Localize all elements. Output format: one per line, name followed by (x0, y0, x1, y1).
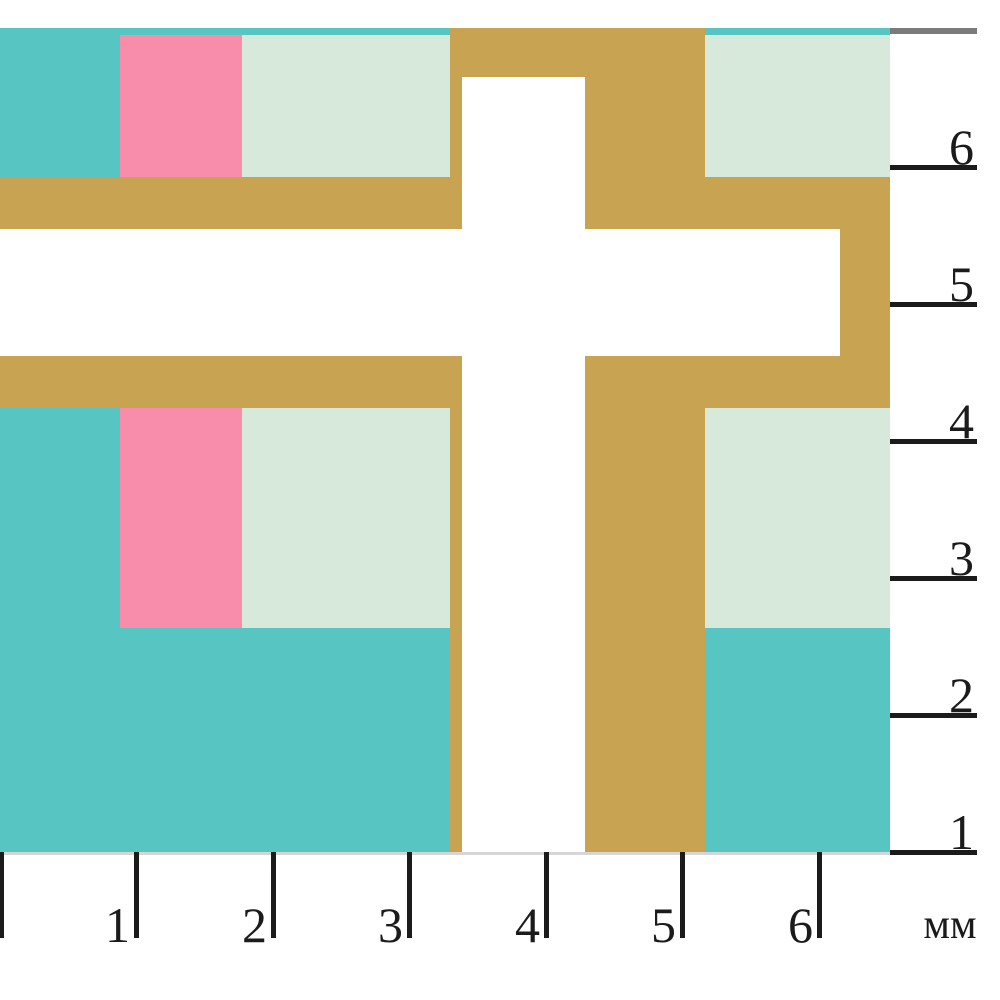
mint-block-lower (242, 408, 450, 628)
gold-band-lower-left (0, 356, 462, 408)
bottom-ruler-tick-1 (134, 852, 139, 938)
measurement-diagram: 654321 123456 мм (0, 0, 1000, 1000)
gold-band-upper-right (585, 177, 890, 229)
unit-label: мм (905, 904, 995, 946)
gold-arm-end-wall (840, 229, 890, 356)
gold-top-band (450, 28, 705, 77)
bottom-ruler-tick-5 (680, 852, 685, 938)
right-ruler-label-4: 4 (890, 396, 974, 446)
bottom-ruler-label-3: 3 (343, 900, 403, 950)
mint-block-upper-right (705, 35, 890, 177)
bottom-ruler-label-1: 1 (70, 900, 130, 950)
gold-left-wall-upper (450, 77, 462, 177)
right-ruler-label-2: 2 (890, 670, 974, 720)
gold-band-upper-left (0, 177, 462, 229)
bottom-ruler-tick-edge (0, 852, 4, 938)
gold-left-wall-lower (450, 408, 462, 852)
right-ruler-label-1: 1 (890, 807, 974, 857)
right-ruler-label-3: 3 (890, 533, 974, 583)
bottom-ruler-label-6: 6 (753, 900, 813, 950)
pink-block-lower (120, 408, 242, 628)
bottom-ruler-tick-4 (544, 852, 549, 938)
mint-block-upper (242, 35, 450, 177)
teal-top-strip-left (0, 28, 450, 35)
bottom-ruler-label-2: 2 (207, 900, 267, 950)
teal-top-strip-right (705, 28, 890, 35)
pink-block-upper (120, 35, 242, 177)
right-ruler-top-line (890, 28, 977, 34)
gold-column-lower (585, 408, 705, 852)
bottom-ruler-tick-2 (271, 852, 276, 938)
right-ruler-label-5: 5 (890, 259, 974, 309)
teal-block-lower-right (705, 628, 890, 852)
mint-block-lower-right (705, 408, 890, 628)
gold-band-lower-right (585, 356, 890, 408)
right-ruler-label-6: 6 (890, 122, 974, 172)
bottom-ruler-label-5: 5 (616, 900, 676, 950)
bottom-ruler-tick-6 (817, 852, 822, 938)
teal-block-upper-left (0, 35, 120, 177)
bottom-ruler-tick-3 (407, 852, 412, 938)
bottom-ruler-label-4: 4 (480, 900, 540, 950)
